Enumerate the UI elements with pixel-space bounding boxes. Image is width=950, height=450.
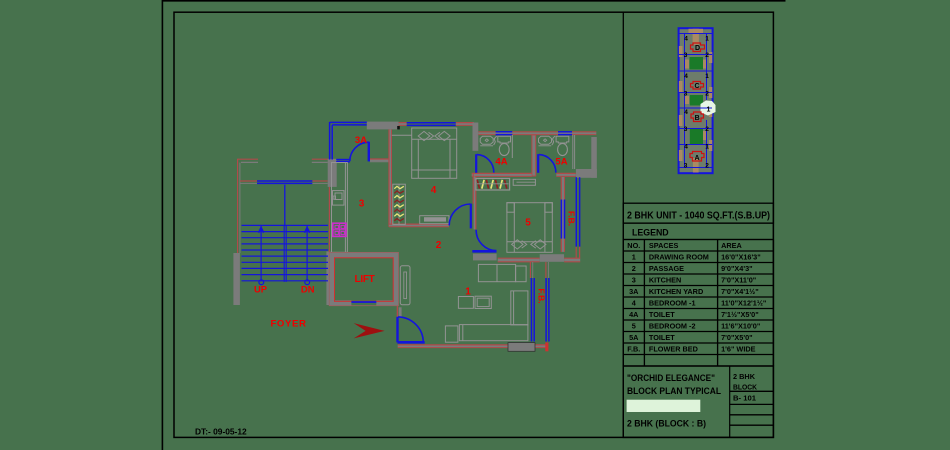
svg-text:KITCHEN: KITCHEN: [649, 275, 681, 284]
svg-text:3: 3: [684, 91, 688, 98]
svg-text:1: 1: [707, 107, 711, 114]
svg-text:SPACES: SPACES: [649, 241, 679, 250]
svg-text:1: 1: [705, 73, 709, 80]
svg-text:F.B.: F.B.: [567, 211, 577, 226]
svg-text:5: 5: [525, 218, 531, 229]
svg-text:1: 1: [632, 252, 636, 261]
svg-text:2: 2: [705, 91, 709, 98]
svg-text:AREA: AREA: [721, 241, 742, 250]
svg-text:KITCHEN YARD: KITCHEN YARD: [649, 287, 703, 296]
svg-text:16'0"X16'3": 16'0"X16'3": [721, 252, 761, 261]
svg-text:4A: 4A: [629, 310, 639, 319]
svg-text:"ORCHID ELEGANCE": "ORCHID ELEGANCE": [627, 373, 715, 384]
svg-text:2: 2: [705, 52, 709, 59]
svg-text:DRAWING ROOM: DRAWING ROOM: [649, 252, 709, 261]
svg-text:7'0"X5'0": 7'0"X5'0": [721, 333, 753, 342]
svg-text:7'0"X4'1½": 7'0"X4'1½": [721, 287, 759, 296]
svg-text:2 BHK (BLOCK : B): 2 BHK (BLOCK : B): [627, 419, 706, 430]
svg-text:F.B.: F.B.: [537, 288, 547, 303]
svg-text:4A: 4A: [495, 156, 507, 167]
svg-text:UP: UP: [254, 283, 267, 294]
svg-text:4: 4: [431, 185, 437, 196]
svg-text:2: 2: [436, 240, 442, 251]
svg-text:LIFT: LIFT: [355, 274, 375, 285]
svg-text:DT:- 09-05-12: DT:- 09-05-12: [195, 427, 247, 437]
svg-text:BEDROOM -1: BEDROOM -1: [649, 298, 696, 307]
svg-text:3A: 3A: [629, 287, 639, 296]
svg-text:2: 2: [632, 264, 636, 273]
svg-text:11'0"X12'1½": 11'0"X12'1½": [721, 298, 766, 307]
svg-text:3: 3: [684, 52, 688, 59]
svg-text:TOILET: TOILET: [649, 333, 675, 342]
svg-text:BLOCK: BLOCK: [733, 383, 757, 392]
svg-text:B: B: [695, 115, 700, 122]
svg-text:2 BHK UNIT - 1040 SQ.FT.(S.B.U: 2 BHK UNIT - 1040 SQ.FT.(S.B.UP): [627, 211, 770, 222]
svg-text:1: 1: [705, 36, 709, 43]
svg-text:C: C: [694, 83, 699, 90]
svg-text:BLOCK PLAN TYPICAL: BLOCK PLAN TYPICAL: [627, 386, 721, 397]
svg-text:5: 5: [632, 321, 636, 330]
svg-text:FLOWER BED: FLOWER BED: [649, 344, 698, 353]
svg-text:4: 4: [684, 73, 688, 80]
svg-text:9'0"X4'3": 9'0"X4'3": [721, 264, 753, 273]
svg-text:NO.: NO.: [627, 241, 640, 250]
svg-text:3: 3: [684, 126, 688, 133]
svg-text:5A: 5A: [629, 333, 639, 342]
svg-text:3: 3: [632, 275, 636, 284]
svg-text:7'0"X11'0": 7'0"X11'0": [721, 275, 756, 284]
svg-text:3: 3: [359, 199, 365, 210]
svg-text:1: 1: [465, 287, 471, 298]
svg-text:PASSAGE: PASSAGE: [649, 264, 684, 273]
svg-text:F.B.: F.B.: [627, 344, 640, 353]
svg-text:2: 2: [705, 126, 709, 133]
svg-text:2: 2: [705, 162, 709, 169]
svg-text:BEDROOM -2: BEDROOM -2: [649, 321, 696, 330]
svg-text:A: A: [694, 155, 699, 162]
svg-text:3: 3: [684, 162, 688, 169]
svg-text:5A: 5A: [555, 156, 567, 167]
svg-text:D: D: [695, 45, 700, 52]
svg-text:LEGEND: LEGEND: [632, 228, 669, 238]
svg-text:4: 4: [684, 109, 688, 116]
svg-text:1: 1: [705, 144, 709, 151]
svg-text:1'6" WIDE: 1'6" WIDE: [721, 344, 756, 353]
svg-text:11'6"X10'0": 11'6"X10'0": [721, 321, 760, 330]
svg-text:7'1½"X5'0": 7'1½"X5'0": [721, 310, 759, 319]
svg-text:4: 4: [684, 144, 688, 151]
svg-text:FOYER: FOYER: [270, 319, 306, 330]
svg-text:TOILET: TOILET: [649, 310, 675, 319]
svg-text:4: 4: [684, 36, 688, 43]
svg-text:3A: 3A: [355, 135, 367, 146]
svg-text:DN: DN: [301, 283, 315, 294]
svg-text:2 BHK: 2 BHK: [733, 372, 755, 381]
svg-text:B- 101: B- 101: [733, 394, 757, 403]
